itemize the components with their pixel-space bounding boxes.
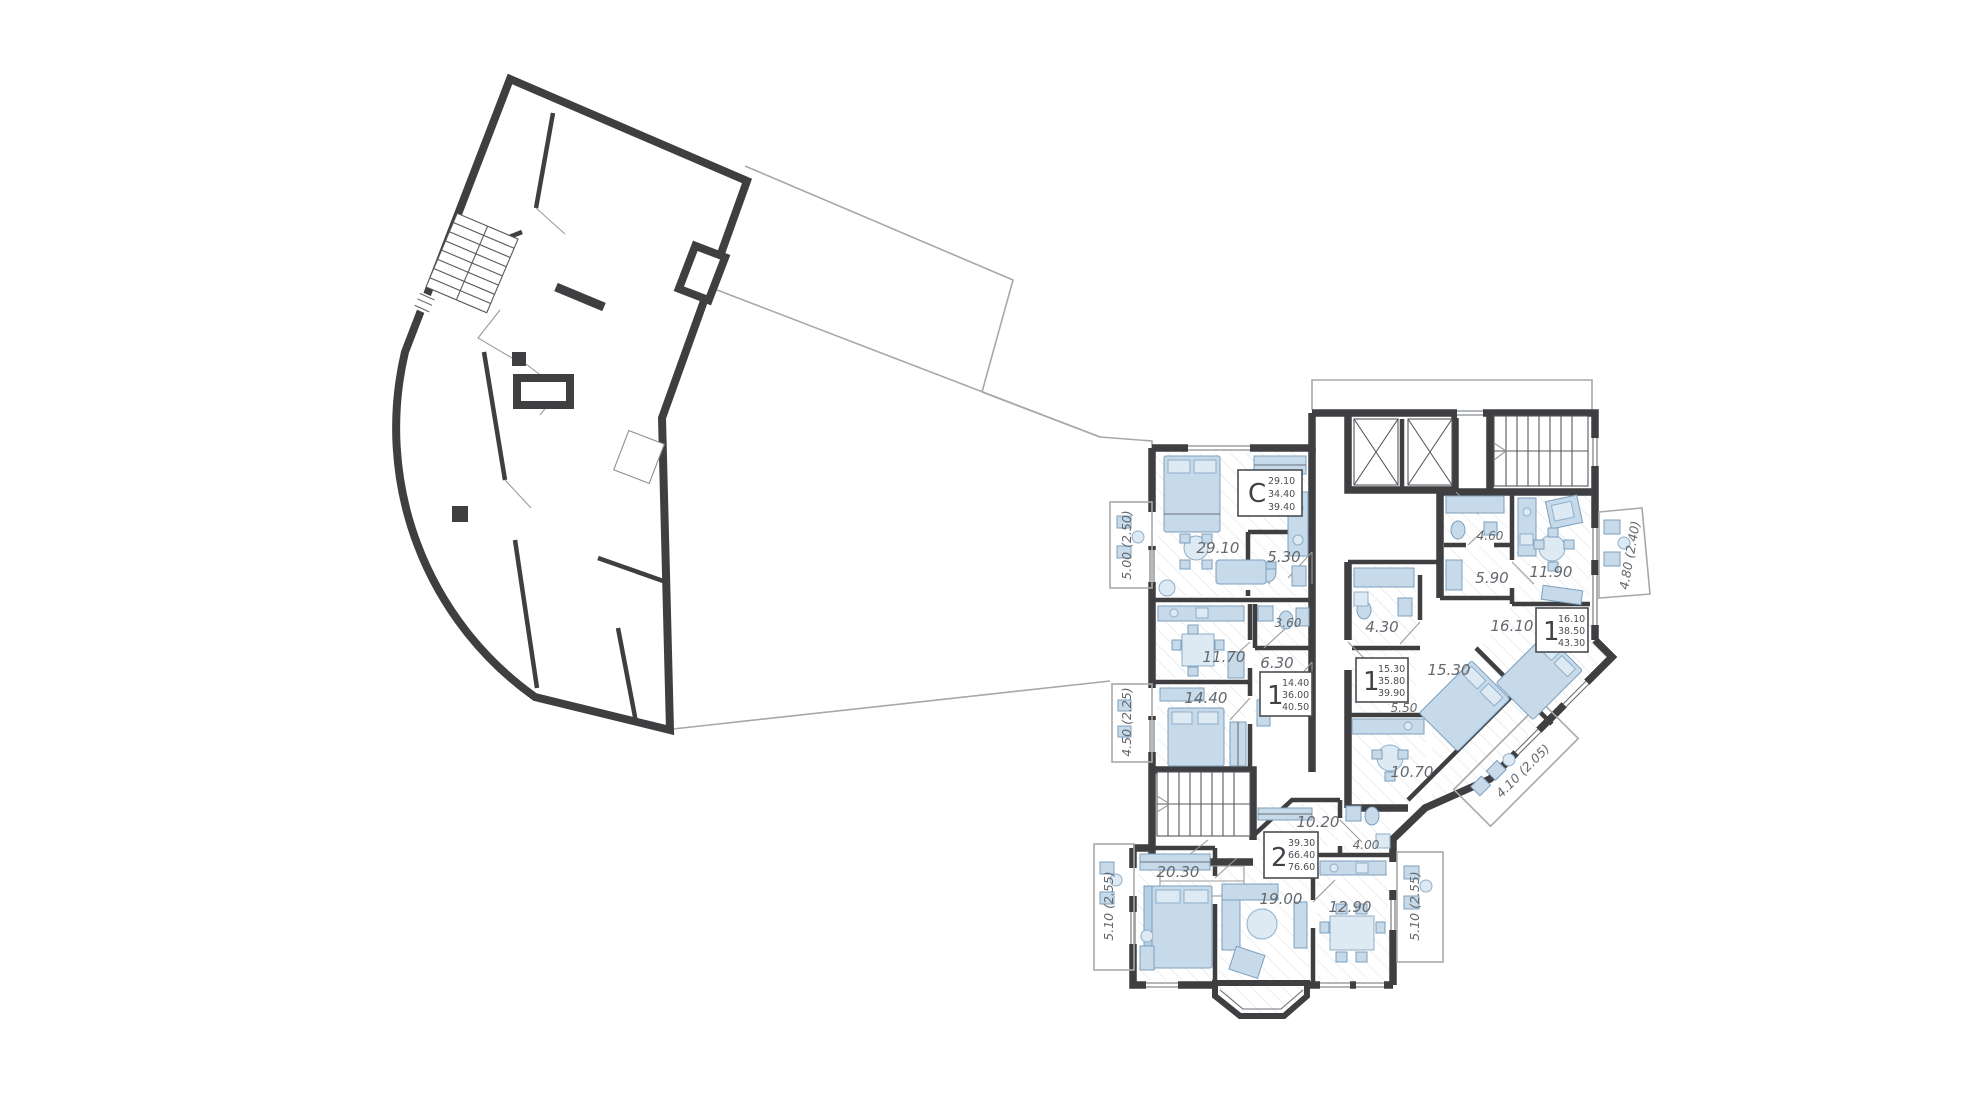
room-label-apt1a-kitchen: 11.70 xyxy=(1203,648,1246,666)
room-label-apt1a-bedroom: 14.40 xyxy=(1185,689,1228,707)
room-label-apt1a-bath: 3.60 xyxy=(1275,616,1302,630)
unit-box-apt2: 2 39.30 66.40 76.60 xyxy=(1264,832,1318,878)
room-label-apt1b-bath: 4.30 xyxy=(1365,618,1398,636)
unit-studio-area3: 39.40 xyxy=(1268,502,1295,513)
room-label-apt1c-kitchen: 11.90 xyxy=(1530,563,1573,581)
room-label-apt1a-hall: 6.30 xyxy=(1260,654,1293,672)
balcony-apt2-right-dim: 5.10 (2.55) xyxy=(1407,871,1422,940)
room-label-apt2-corridor: 10.20 xyxy=(1297,813,1340,831)
unit-box-studio: C 29.10 34.40 39.40 xyxy=(1238,470,1302,516)
column xyxy=(452,506,468,522)
room-label-apt2-bedroom: 20.30 xyxy=(1157,863,1200,881)
unit-apt1a-area1: 14.40 xyxy=(1282,678,1309,689)
unit-apt2-area2: 66.40 xyxy=(1288,850,1315,861)
room-label-apt1c-hall: 5.90 xyxy=(1475,569,1508,587)
unit-apt1c-area1: 16.10 xyxy=(1558,614,1585,625)
room-label-apt1b-kitchen: 10.70 xyxy=(1391,763,1434,781)
room-label-apt2-living: 19.00 xyxy=(1260,890,1303,908)
unit-apt1a-area3: 40.50 xyxy=(1282,702,1309,713)
unit-apt2-area1: 39.30 xyxy=(1288,838,1315,849)
balcony-apt1a: 4.50 (2.25) xyxy=(1112,684,1152,762)
balcony-apt2-left: 5.10 (2.55) xyxy=(1094,844,1134,970)
bay-window xyxy=(1215,983,1307,1016)
unit-apt1c-area3: 43.30 xyxy=(1558,638,1585,649)
unit-box-apt1c: 1 16.10 38.50 43.30 xyxy=(1536,608,1588,652)
floor-plan-page: 5.00 (2.50) 4.50 (2.25) 5.10 (2.55) 5.10… xyxy=(0,0,1980,1099)
room-label-apt1c-bath: 4.60 xyxy=(1477,529,1504,543)
unit-apt2-type: 2 xyxy=(1271,843,1288,873)
balcony-studio: 5.00 (2.50) xyxy=(1110,502,1152,588)
unit-apt2-area3: 76.60 xyxy=(1288,862,1315,873)
stairwell-lower xyxy=(1157,772,1250,836)
room-label-apt1b-hall: 5.50 xyxy=(1391,701,1418,715)
balcony-studio-dim: 5.00 (2.50) xyxy=(1119,510,1134,579)
room-label-studio-bath: 5.30 xyxy=(1267,548,1300,566)
balcony-apt2-right: 5.10 (2.55) xyxy=(1397,852,1443,962)
balcony-apt1a-dim: 4.50 (2.25) xyxy=(1119,687,1134,756)
unit-studio-type: C xyxy=(1248,479,1266,509)
unit-box-apt1a: 1 14.40 36.00 40.50 xyxy=(1260,672,1312,716)
unit-apt1b-area2: 35.80 xyxy=(1378,676,1405,687)
room-label-apt2-bath: 4.00 xyxy=(1353,838,1380,852)
unit-apt1c-area2: 38.50 xyxy=(1558,626,1585,637)
room-label-apt2-kitchen: 12.90 xyxy=(1329,898,1372,916)
unit-apt1b-area1: 15.30 xyxy=(1378,664,1405,675)
room-label-apt1c-bedroom: 16.10 xyxy=(1491,617,1534,635)
floor-plan-canvas: 5.00 (2.50) 4.50 (2.25) 5.10 (2.55) 5.10… xyxy=(0,0,1980,1099)
balcony-apt2-left-dim: 5.10 (2.55) xyxy=(1101,871,1116,940)
unit-studio-area1: 29.10 xyxy=(1268,476,1295,487)
unit-studio-area2: 34.40 xyxy=(1268,489,1295,500)
unit-box-apt1b: 1 15.30 35.80 39.90 xyxy=(1356,658,1408,702)
balcony-apt1c: 4.80 (2.40) xyxy=(1599,508,1650,598)
unit-apt1a-area2: 36.00 xyxy=(1282,690,1309,701)
room-label-apt1b-living: 15.30 xyxy=(1428,661,1471,679)
room-label-studio-living: 29.10 xyxy=(1197,539,1240,557)
stairwell-upper xyxy=(1494,416,1588,486)
unit-apt1b-area3: 39.90 xyxy=(1378,688,1405,699)
